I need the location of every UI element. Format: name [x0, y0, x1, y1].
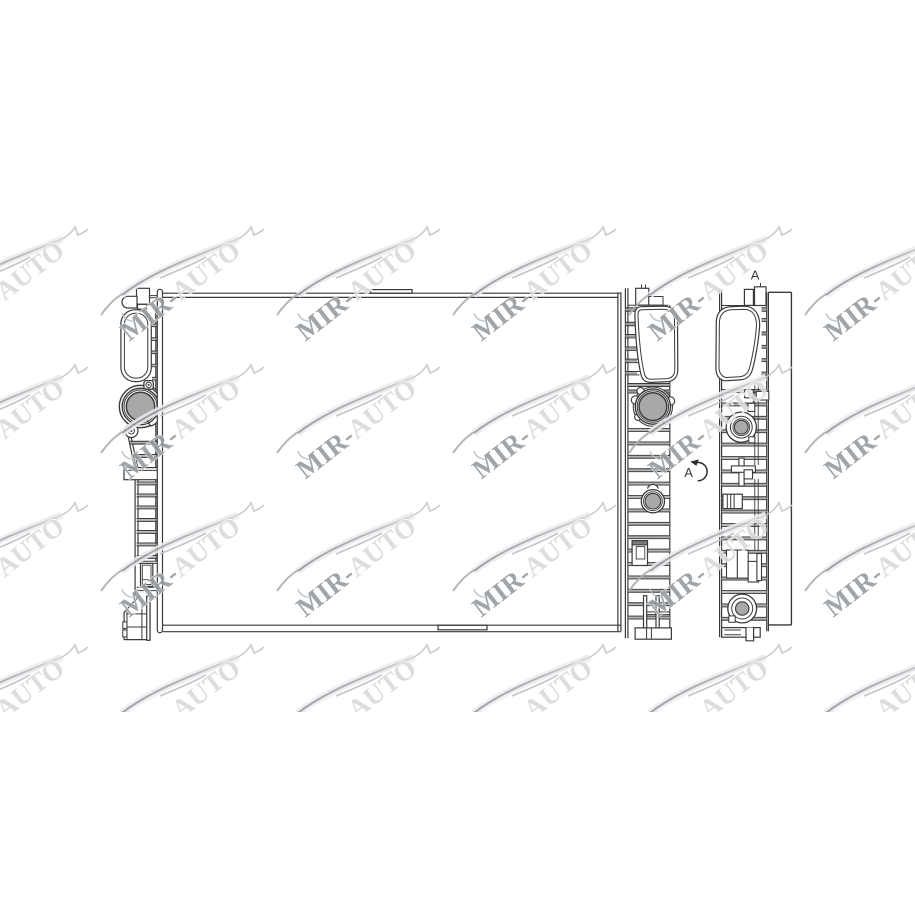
svg-text:A: A [684, 465, 693, 480]
